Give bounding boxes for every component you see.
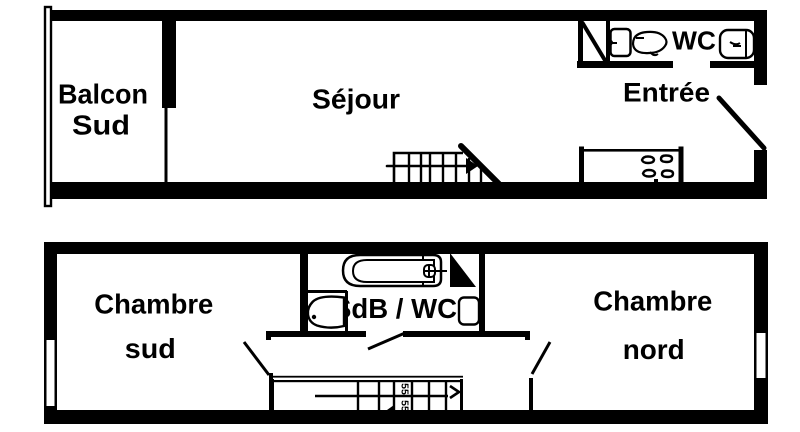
- svg-text:WC: WC: [672, 28, 716, 56]
- svg-text:sud: sud: [125, 333, 176, 364]
- svg-text:SdB / WC: SdB / WC: [333, 293, 457, 324]
- svg-text:Séjour: Séjour: [312, 84, 400, 115]
- svg-text:Chambre: Chambre: [94, 289, 213, 320]
- svg-text:55: 55: [399, 383, 411, 395]
- svg-text:55: 55: [399, 400, 411, 412]
- svg-text:Chambre: Chambre: [593, 286, 712, 317]
- svg-text:Balcon: Balcon: [58, 79, 148, 110]
- svg-text:Sud: Sud: [72, 110, 130, 141]
- svg-text:nord: nord: [623, 334, 685, 365]
- svg-text:Entrée: Entrée: [623, 78, 710, 108]
